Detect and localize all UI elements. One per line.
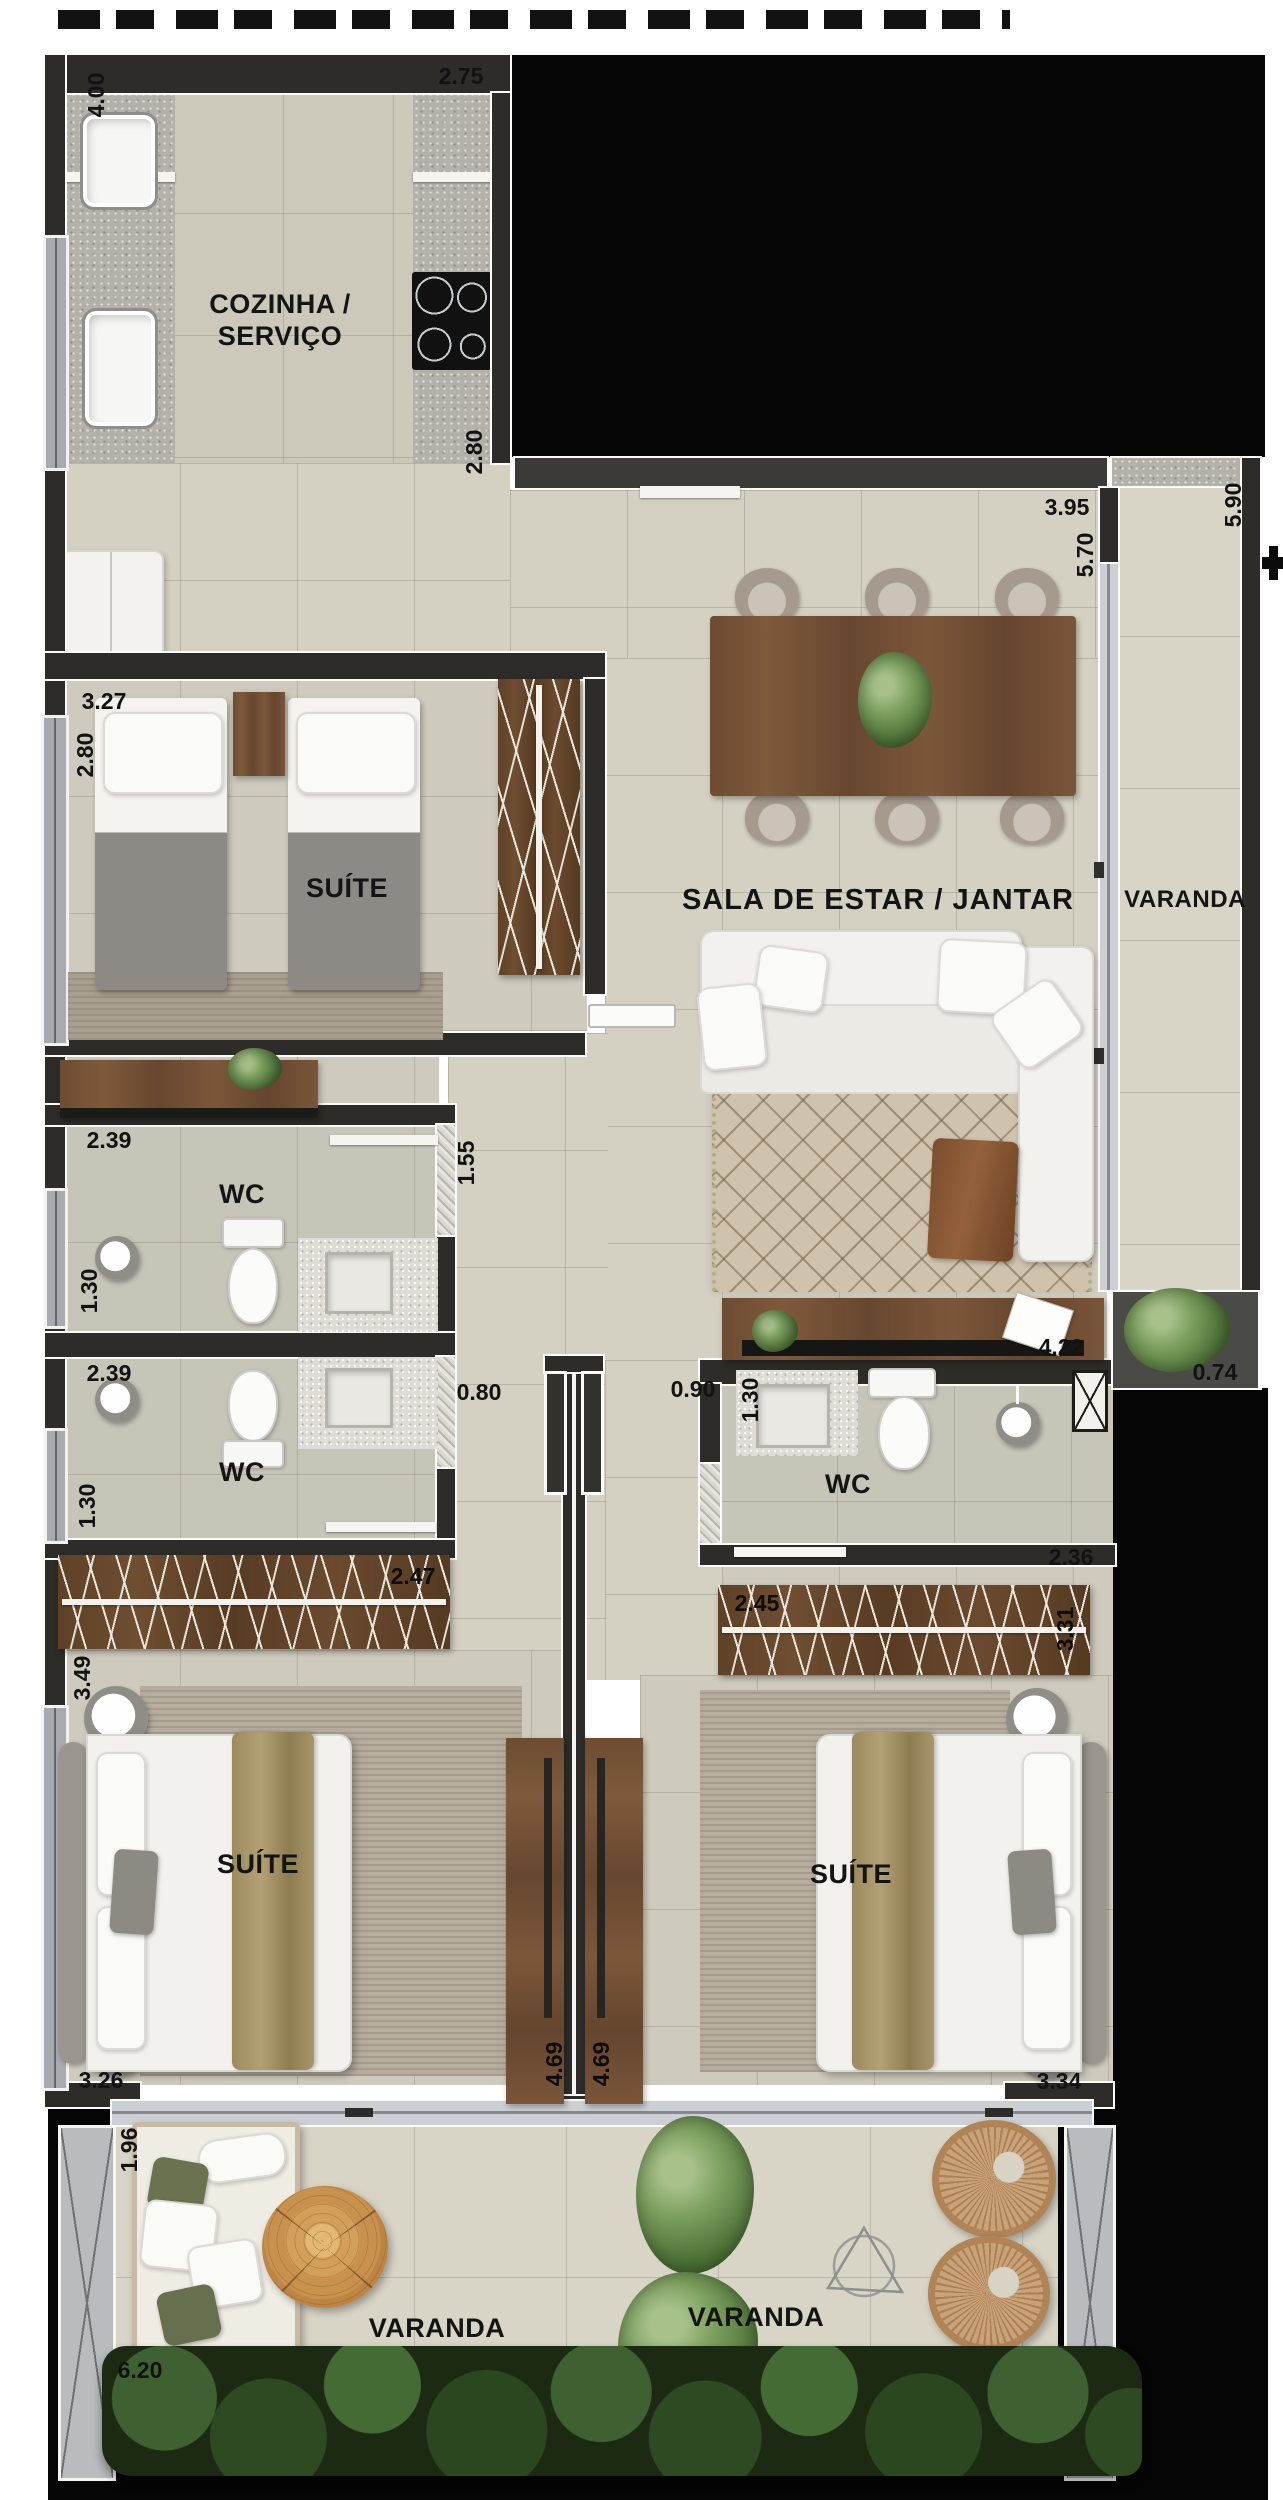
wc3-sink-icon bbox=[756, 1384, 830, 1448]
dim-varanda-height: 5.90 bbox=[1221, 460, 1245, 550]
kitchen-sink-icon bbox=[82, 308, 158, 429]
wall-hatch-strip bbox=[58, 10, 1010, 29]
label-varanda-bottom-right: VARANDA bbox=[683, 2301, 829, 2333]
dim-wc3-depth: 1.30 bbox=[738, 1355, 762, 1445]
closet-right-rail bbox=[722, 1627, 1086, 1633]
dim-closet-right: 2.45 bbox=[712, 1591, 802, 1615]
fridge-door-split bbox=[110, 552, 112, 664]
suite-left-accent-pillow bbox=[109, 1849, 159, 1936]
wc3-shower-arm bbox=[1016, 1384, 1019, 1404]
label-wc-mid: WC bbox=[192, 1456, 292, 1488]
dim-varanda-sofa: 1.96 bbox=[117, 2105, 141, 2195]
dim-kitchen-height: 4.00 bbox=[84, 50, 108, 140]
wc1-toilet-tank bbox=[222, 1218, 284, 1248]
suite1-door-leaf bbox=[588, 1004, 676, 1028]
panel-right-groove bbox=[597, 1758, 605, 2018]
wall-kitchen-right bbox=[492, 93, 510, 463]
dim-living-height: 5.70 bbox=[1073, 510, 1097, 600]
black-block-right bbox=[1113, 1388, 1268, 2500]
suite-left-throw bbox=[232, 1732, 314, 2070]
label-living: SALA DE ESTAR / JANTAR bbox=[658, 884, 1098, 916]
kitchen-window-icon bbox=[43, 235, 69, 471]
rattan-chair-1 bbox=[932, 2120, 1056, 2238]
dim-wc1-depth: 1.30 bbox=[77, 1246, 101, 1336]
dim-wc2-door: 0.80 bbox=[434, 1380, 524, 1404]
closet-left-rail bbox=[62, 1599, 446, 1605]
label-suite-top: SUÍTE bbox=[257, 872, 437, 904]
dim-varanda-bottom-width: 6.20 bbox=[95, 2358, 185, 2382]
wc1-shelf bbox=[330, 1135, 438, 1145]
suite-top-wardrobe bbox=[498, 679, 580, 975]
dim-wc3-door: 0.90 bbox=[648, 1377, 738, 1401]
living-varanda-glass-door bbox=[1100, 560, 1118, 1290]
suite-right-throw bbox=[852, 1732, 934, 2070]
pillow-twin-right bbox=[296, 712, 416, 794]
kitchen-pass-shelf bbox=[640, 486, 740, 498]
sofa-pillow-2 bbox=[696, 982, 768, 1072]
wc2-door-frosted bbox=[437, 1357, 455, 1469]
glass-door-handle-1 bbox=[1094, 862, 1104, 878]
label-varanda-bottom-left: VARANDA bbox=[364, 2312, 510, 2344]
dim-wc2-depth: 1.30 bbox=[75, 1461, 99, 1551]
living-window-band bbox=[515, 458, 1107, 488]
dim-kitchen-top: 2.75 bbox=[416, 64, 506, 88]
dim-suite-left-depth: 3.49 bbox=[70, 1633, 94, 1723]
wood-slice-table-icon bbox=[262, 2186, 388, 2308]
wall-varanda-right bbox=[1242, 458, 1260, 1388]
suite-top-window-icon bbox=[41, 715, 69, 1046]
sofa-throw-brown bbox=[927, 1138, 1019, 1262]
cooktop-icon bbox=[412, 272, 492, 370]
wall-wc1-right bbox=[437, 1237, 455, 1335]
wc2-toilet-bowl bbox=[228, 1370, 278, 1442]
label-suite-left: SUÍTE bbox=[168, 1848, 348, 1880]
nightstand-icon bbox=[233, 692, 285, 776]
dim-suite-right-width: 3.34 bbox=[1014, 2069, 1104, 2093]
label-kitchen: COZINHA / SERVIÇO bbox=[170, 288, 390, 352]
pillow-twin-left bbox=[103, 712, 223, 794]
dim-divider-left: 4.69 bbox=[542, 2019, 566, 2109]
glass-door-handle-2 bbox=[1094, 1048, 1104, 1064]
wc1-window-icon bbox=[44, 1188, 68, 1329]
suite-right-door-leaf bbox=[584, 1374, 601, 1492]
dim-wc1-width: 2.39 bbox=[64, 1128, 154, 1152]
black-block-top-right bbox=[505, 55, 1265, 457]
glass-door-handle-3 bbox=[345, 2108, 373, 2117]
kitchen-shelf-right bbox=[413, 172, 493, 182]
wardrobe-rail bbox=[536, 685, 542, 969]
wall-suite-top bbox=[45, 653, 605, 679]
wc2-sink-icon bbox=[325, 1368, 393, 1428]
hedge-plants bbox=[102, 2346, 1142, 2476]
label-suite-right: SUÍTE bbox=[761, 1858, 941, 1890]
suite-left-door-leaf bbox=[547, 1374, 564, 1492]
wall-wc2-right bbox=[437, 1469, 455, 1545]
dim-varanda-planter: 0.74 bbox=[1170, 1360, 1260, 1384]
central-wall-gap-line bbox=[572, 1362, 576, 2100]
dim-kitchen-depth: 2.80 bbox=[462, 407, 486, 497]
label-varanda-side: VARANDA bbox=[1112, 884, 1258, 916]
wc3-shower-icon bbox=[996, 1402, 1040, 1446]
sofa-pillow-1 bbox=[752, 943, 830, 1014]
wc3-door-frosted bbox=[700, 1464, 720, 1548]
dim-suite-top-depth: 2.80 bbox=[73, 710, 97, 800]
panel-left-groove bbox=[544, 1758, 552, 2018]
dim-wc3-width: 2.36 bbox=[1026, 1545, 1116, 1569]
rattan-chair-2 bbox=[928, 2236, 1050, 2352]
dim-closet-right-depth: 3.31 bbox=[1053, 1584, 1077, 1674]
dim-hall: 1.55 bbox=[454, 1118, 478, 1208]
dining-chair-6 bbox=[1000, 790, 1064, 844]
wc3-towel-bar bbox=[734, 1547, 846, 1557]
wc3-toilet-tank bbox=[868, 1368, 936, 1398]
wc1-toilet-bowl bbox=[228, 1248, 278, 1324]
central-door-header bbox=[545, 1356, 603, 1372]
suite-right-accent-pillow bbox=[1007, 1849, 1057, 1936]
wc2-towel-bar bbox=[326, 1522, 436, 1532]
wc3-toilet-bowl bbox=[878, 1396, 930, 1470]
dim-divider-right: 4.69 bbox=[589, 2019, 613, 2109]
suite-left-headboard bbox=[58, 1742, 88, 2064]
dim-desk-width: 4.22 bbox=[1016, 1335, 1106, 1359]
dining-chair-5 bbox=[875, 790, 939, 844]
floor-plan: COZINHA / SERVIÇO SUÍTE SALA DE ESTAR / … bbox=[0, 0, 1283, 2500]
wc2-window-icon bbox=[44, 1428, 68, 1544]
dim-wc2-width: 2.39 bbox=[64, 1361, 154, 1385]
fridge-icon bbox=[60, 550, 164, 666]
label-wc-top: WC bbox=[192, 1178, 292, 1210]
wall-central bbox=[563, 1356, 585, 2106]
wall-wc1-wc2 bbox=[45, 1333, 455, 1357]
glass-door-handle-4 bbox=[985, 2108, 1013, 2117]
label-wc-right: WC bbox=[798, 1468, 898, 1500]
dining-chair-4 bbox=[745, 790, 809, 844]
vent-shaft-icon bbox=[1072, 1370, 1108, 1432]
wall-suite1-right bbox=[585, 679, 605, 994]
dim-suite-left-width: 3.26 bbox=[56, 2068, 146, 2092]
wc1-sink-icon bbox=[325, 1252, 393, 1314]
dim-living-top: 3.95 bbox=[1022, 495, 1112, 519]
plus-marker-icon-v bbox=[1269, 546, 1278, 580]
dim-closet-left: 2.47 bbox=[368, 1564, 458, 1588]
wire-table-icon bbox=[822, 2222, 906, 2302]
